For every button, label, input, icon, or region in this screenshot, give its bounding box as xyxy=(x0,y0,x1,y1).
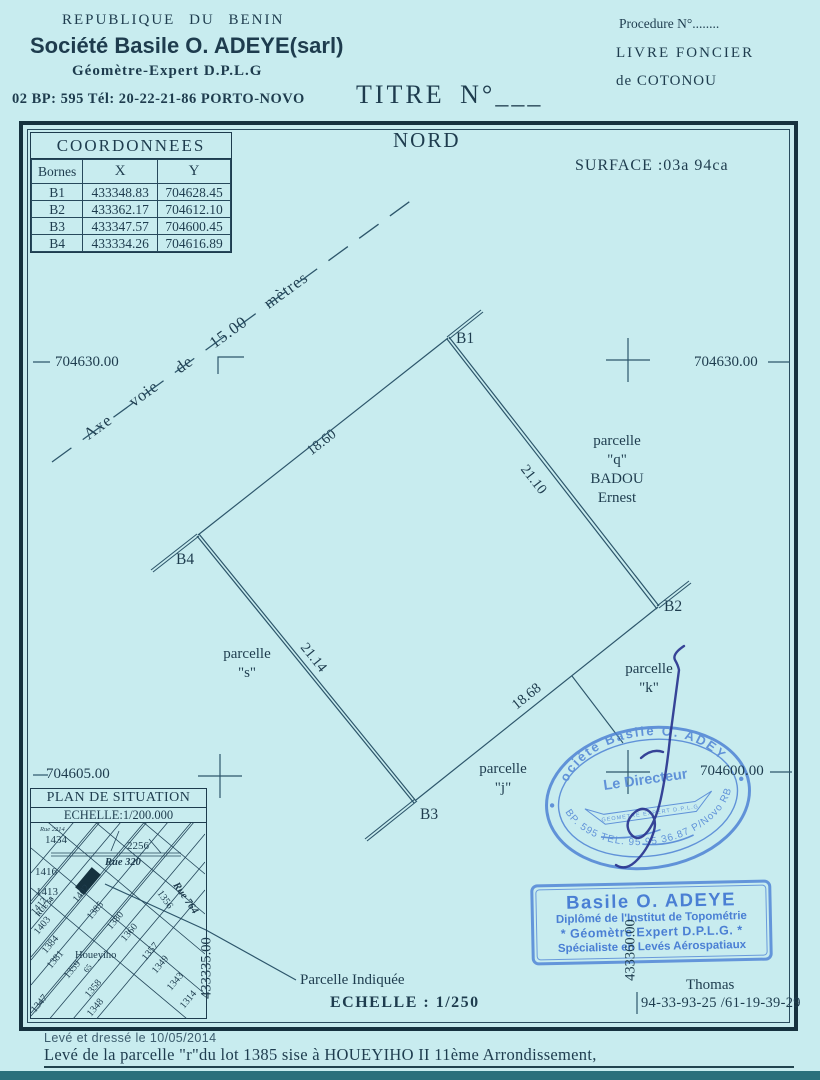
situation-map: Rue 2214 Rue 320 Rue 764 RUE 58 1434 225… xyxy=(31,823,205,1019)
lot-number: 1343 xyxy=(165,971,186,993)
parcel-boundary xyxy=(197,337,659,803)
lot-number: 1416 xyxy=(35,866,58,878)
situation-plan-title: PLAN DE SITUATION xyxy=(31,789,206,808)
street-name: Rue 2214 xyxy=(39,826,65,833)
lot-number: 1314 xyxy=(178,989,199,1011)
parcel-jk-divider xyxy=(572,676,623,743)
road-axis-dashed-line xyxy=(52,194,420,462)
lot-number: 1348 xyxy=(85,997,106,1019)
situation-plan: PLAN DE SITUATION ECHELLE:1/200.000 xyxy=(30,788,207,1019)
lot-number: 1434 xyxy=(45,834,68,846)
grid-y-bottom-right: 704600.00 xyxy=(700,763,764,780)
certification-stamp: Basile O. ADEYE Diplômé de l'Institut de… xyxy=(530,879,773,965)
lot-number: 2256 xyxy=(127,840,150,852)
area-name: Houeyiho xyxy=(75,950,116,961)
grid-x-right: 433360.00 xyxy=(623,919,640,981)
north-label: NORD xyxy=(393,128,461,153)
lot-number: 1413 xyxy=(36,886,59,898)
lot-number: 1359 xyxy=(62,959,83,981)
lot-number: 1403 xyxy=(32,915,53,937)
street-name: Rue 320 xyxy=(104,857,142,868)
lot-number: 1347 xyxy=(31,993,50,1015)
lot-number: 1356 xyxy=(155,888,175,911)
grid-x-left: 433335.00 xyxy=(199,937,216,999)
lot-number: 65 xyxy=(82,962,94,974)
survey-document-page: REPUBLIQUE DU BENIN Société Basile O. AD… xyxy=(0,0,820,1080)
lot-number: 1385 xyxy=(85,900,106,922)
surface-label: SURFACE :03a 94ca xyxy=(575,157,729,175)
lot-number: 1358 xyxy=(83,978,104,1000)
situation-plan-scale: ECHELLE:1/200.000 xyxy=(31,808,206,823)
right-angle-mark xyxy=(218,357,244,374)
grid-cross-marks xyxy=(198,338,650,798)
